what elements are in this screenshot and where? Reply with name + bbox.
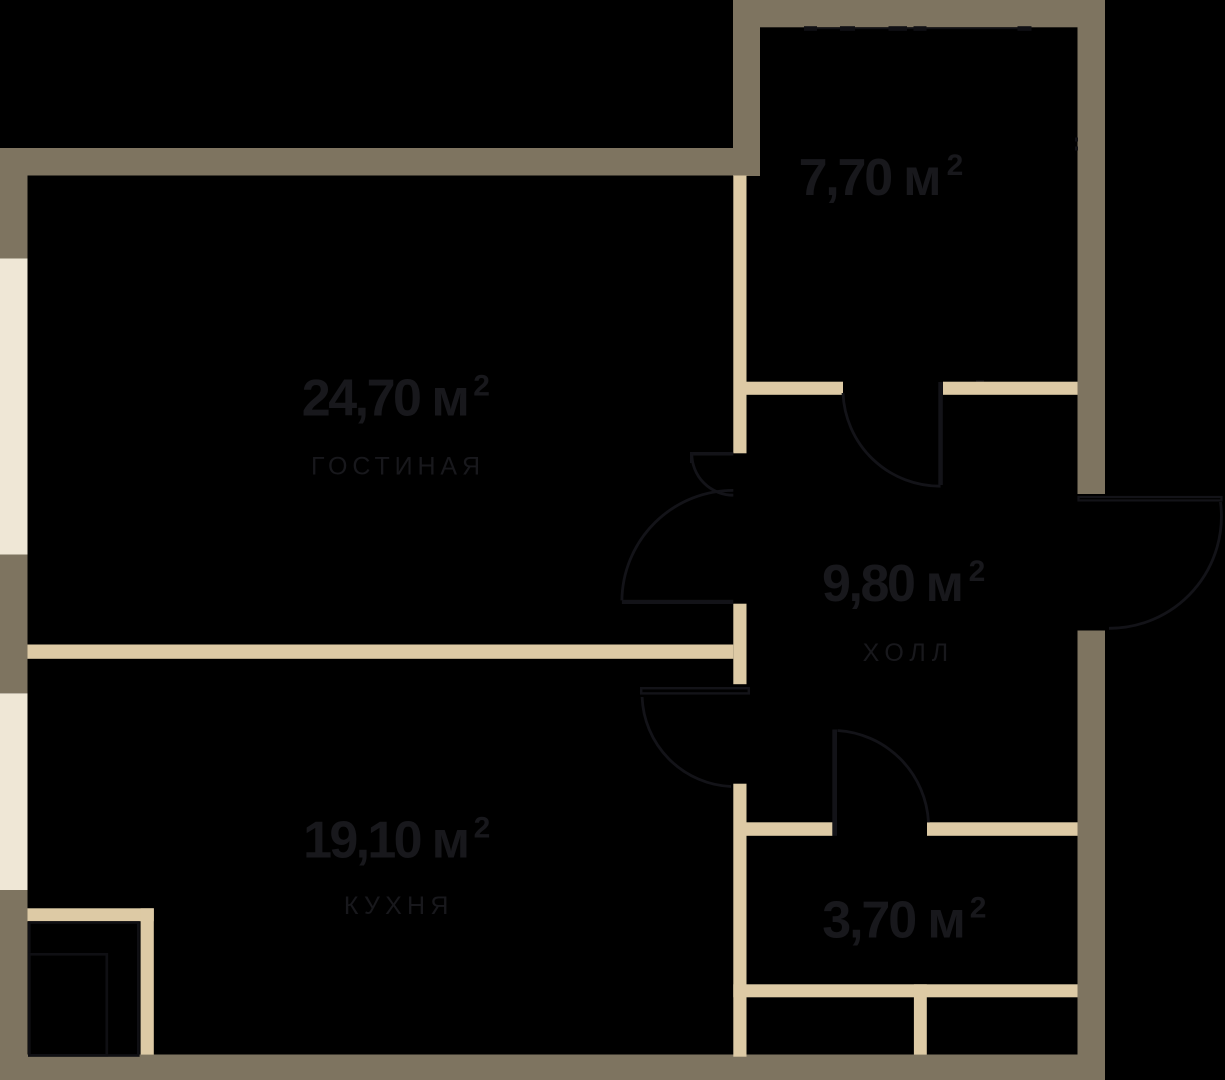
svg-text:2: 2 [970,891,987,924]
svg-text:2: 2 [947,149,964,182]
svg-text:ГОСТИНАЯ: ГОСТИНАЯ [311,452,480,480]
svg-text:19,10 м: 19,10 м [303,812,470,870]
svg-text:9,80 м: 9,80 м [822,555,964,613]
svg-text:7,70 м: 7,70 м [799,149,942,207]
svg-text:2: 2 [969,555,986,588]
svg-text:3,70 м: 3,70 м [822,892,966,950]
svg-text:2: 2 [473,369,490,402]
svg-text:2: 2 [474,812,491,845]
svg-text:24,70 м: 24,70 м [302,370,470,428]
